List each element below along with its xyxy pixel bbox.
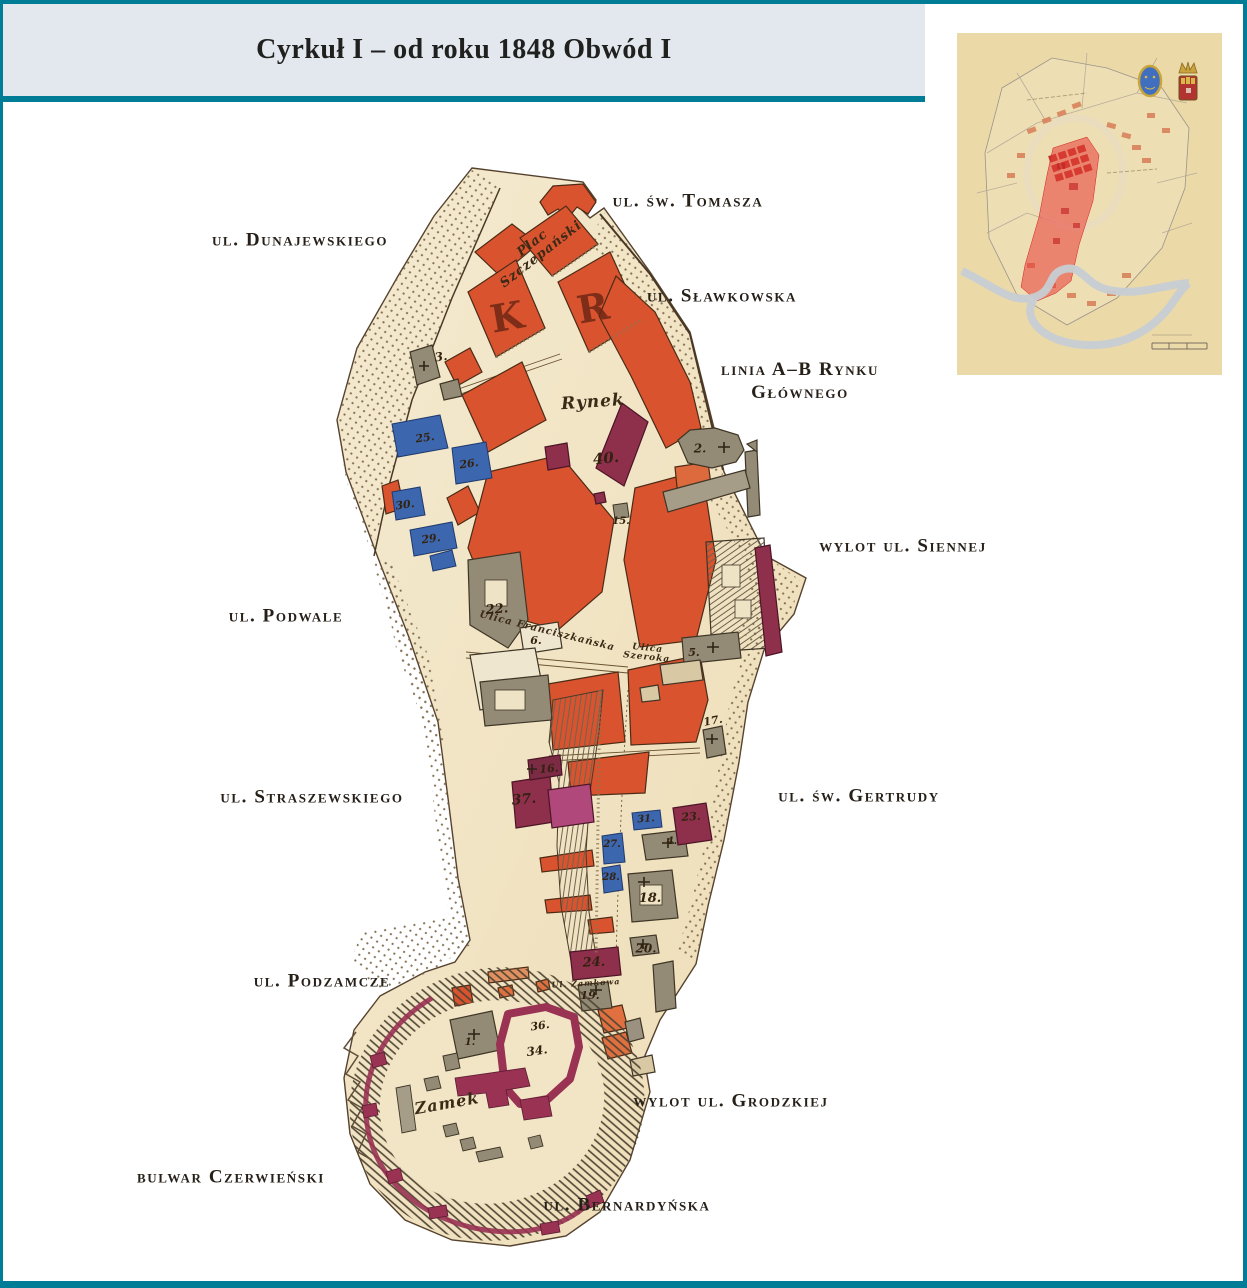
street-label-ul-dunajewskiego: ul. Dunajewskiego (212, 230, 388, 253)
map-label-22: 22. (485, 602, 509, 618)
map-label-19: 19. (580, 990, 599, 1002)
map-label-k: K (487, 294, 526, 339)
map-label-29: 29. (421, 532, 442, 546)
street-label-ul-podwale: ul. Podwale (229, 606, 344, 629)
map-label-15: 15. (612, 517, 629, 528)
street-label-ul-straszewskiego: ul. Straszewskiego (220, 787, 403, 810)
street-label-wylot-ul-siennej: wylot ul. Siennej (819, 536, 987, 559)
map-label-4: 4. (667, 837, 677, 848)
street-label-ul-bernardynska: ul. Bernardyńska (544, 1195, 711, 1218)
map-label-40: 40. (592, 450, 620, 468)
map-label-24: 24. (582, 956, 605, 971)
inset-city-map (957, 33, 1222, 375)
map-label-26: 26. (459, 457, 480, 471)
map-label-5: 5. (688, 647, 699, 659)
map-label-27: 27. (603, 840, 620, 851)
map-label-31: 31. (637, 814, 655, 826)
street-label-bulwar-czerwienski: bulwar Czerwieński (137, 1167, 325, 1190)
map-label-r: R (574, 286, 612, 331)
map-label-3: 3. (434, 350, 448, 364)
map-label-37: 37. (511, 792, 537, 809)
street-label-ul-slawkowska: ul. Sławkowska (647, 286, 797, 309)
map-label-18: 18. (639, 892, 662, 906)
street-label-wylot-ul-grodzkiej: wylot ul. Grodzkiej (633, 1091, 828, 1114)
city-crest-icon (1179, 62, 1197, 100)
map-label-23: 23. (681, 811, 701, 824)
street-label-ul-podzamcze: ul. Podzamcze (254, 971, 391, 994)
map-label-25: 25. (415, 431, 436, 445)
map-label-34: 34. (526, 1043, 548, 1058)
street-label-ul-sw-gertrudy: ul. św. Gertrudy (778, 786, 940, 809)
map-label-30: 30. (395, 498, 416, 512)
street-label-linia-ab-rynku: linia A–B Rynku Głównego (721, 359, 879, 405)
map-label-6: 6. (530, 635, 541, 647)
map-label-28: 28. (602, 873, 619, 884)
map-label-16: 16. (539, 762, 559, 775)
map-label-1: 1. (465, 1038, 475, 1049)
street-label-ul-sw-tomasza: ul. św. Tomasza (613, 191, 764, 214)
city-seal-icon (1139, 66, 1161, 96)
map-label-2: 2. (694, 443, 707, 456)
map-label-36: 36. (530, 1019, 551, 1033)
map-label-20: 20. (636, 943, 657, 956)
